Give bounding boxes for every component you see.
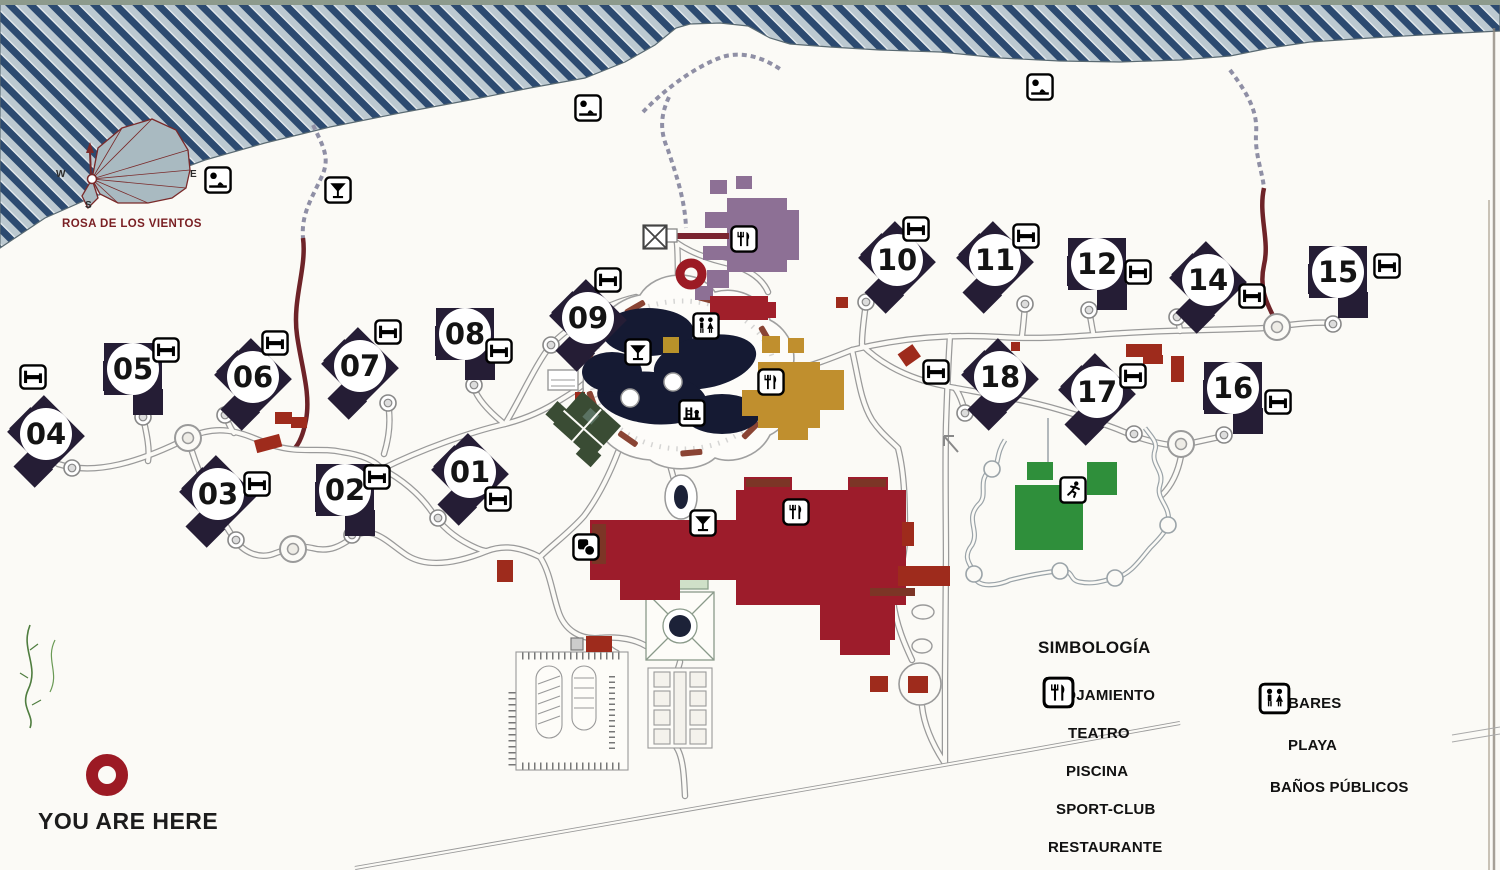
svg-text:01: 01 [450, 455, 490, 489]
jacuzzi [621, 389, 639, 407]
bed-icon [364, 465, 389, 488]
dock-icon [644, 226, 667, 249]
pier [666, 229, 729, 242]
svg-text:15: 15 [1318, 255, 1358, 289]
legend-item-piscina: PISCINA [1042, 752, 1162, 790]
you-are-here-ring [680, 263, 702, 285]
bed-icon [244, 472, 269, 495]
map-fold-edge [1452, 28, 1500, 870]
svg-text:10: 10 [877, 243, 917, 277]
bed-icon [595, 268, 620, 291]
legend-item-label: BARES [1288, 695, 1342, 712]
theater-icon [573, 534, 598, 559]
bar-icon [325, 177, 350, 202]
legend-item-ba-os-p-blicos: BAÑOS PÚBLICOS [1258, 766, 1409, 808]
restaurant-icon [758, 369, 783, 394]
bed-icon [1120, 364, 1145, 387]
bed-icon [486, 339, 511, 362]
svg-text:08: 08 [445, 317, 485, 351]
pool-kiosk [663, 337, 679, 353]
beach-icon [575, 95, 600, 120]
compass-south-label: S [85, 200, 92, 211]
bed-icon [1239, 284, 1264, 307]
legend-item-playa: PLAYA [1258, 724, 1409, 766]
theatre-hotel-building [590, 477, 915, 655]
bed-icon [1013, 224, 1038, 247]
restaurant-icon [783, 499, 808, 524]
sport-icon [1060, 477, 1085, 502]
legend-item-restaurante: RESTAURANTE [1042, 828, 1162, 866]
wc-icon [1258, 682, 1291, 715]
bed-icon [20, 365, 45, 388]
legend-item-label: BAÑOS PÚBLICOS [1270, 779, 1409, 796]
parking-kiosk [586, 636, 612, 652]
legend-item-label: RESTAURANTE [1048, 839, 1162, 856]
compass-west-label: W [56, 169, 65, 180]
svg-text:05: 05 [113, 352, 153, 386]
legend-item-label: PLAYA [1288, 737, 1337, 754]
building-15: 15 [1308, 246, 1368, 318]
bed-icon [903, 217, 928, 240]
legend-column-1: ALOJAMIENTOTEATROPISCINASPORT-CLUBRESTAU… [1042, 676, 1162, 866]
legend-item-teatro: TEATRO [1042, 714, 1162, 752]
svg-text:02: 02 [325, 473, 365, 507]
you-are-here-label: YOU ARE HERE [38, 808, 218, 835]
you-are-here-ring [92, 760, 122, 790]
beach-icon [1027, 74, 1052, 99]
legend-column-2: BARESPLAYABAÑOS PÚBLICOS [1258, 682, 1409, 808]
pool-icon [679, 400, 704, 425]
compass-title: ROSA DE LOS VIENTOS [62, 218, 202, 230]
svg-text:16: 16 [1213, 371, 1253, 405]
svg-text:03: 03 [198, 477, 238, 511]
map-top-border [0, 0, 1500, 5]
building-14: 14 [1154, 240, 1247, 333]
bed-icon [262, 331, 287, 354]
fountain [669, 615, 691, 637]
vegetation [20, 625, 55, 728]
wc-icon [693, 313, 718, 338]
svg-text:07: 07 [340, 349, 380, 383]
restaurant-icon [731, 226, 756, 251]
legend-item-label: SPORT-CLUB [1056, 801, 1156, 818]
bed-icon [1374, 254, 1399, 277]
legend-item-label: TEATRO [1068, 725, 1130, 742]
legend-item-label: PISCINA [1066, 763, 1128, 780]
parking-lot [512, 652, 628, 770]
bed-icon [485, 487, 510, 510]
svg-text:11: 11 [975, 243, 1015, 277]
svg-text:09: 09 [568, 301, 608, 335]
sport-club-field [1015, 462, 1117, 550]
building-03: 03 [164, 454, 257, 547]
svg-text:06: 06 [233, 360, 273, 394]
svg-text:14: 14 [1188, 263, 1228, 297]
legend-title: SIMBOLOGÍA [1038, 638, 1151, 658]
bed-icon [923, 360, 948, 383]
bed-icon [1265, 390, 1290, 413]
bar-icon [625, 339, 650, 364]
formal-garden [648, 668, 712, 748]
svg-text:04: 04 [26, 417, 66, 451]
svg-text:12: 12 [1077, 247, 1117, 281]
building-12: 12 [1067, 238, 1127, 310]
building-16: 16 [1203, 362, 1263, 434]
bed-icon [375, 320, 400, 343]
compass-east-label: E [190, 169, 197, 180]
restaurant-icon [1042, 676, 1075, 709]
legend-item-sport-club: SPORT-CLUB [1042, 790, 1162, 828]
beach-icon [205, 167, 230, 192]
bar-icon [690, 510, 715, 535]
bed-icon [1125, 260, 1150, 283]
svg-text:17: 17 [1077, 375, 1117, 409]
pool-island [664, 373, 682, 391]
svg-text:18: 18 [980, 360, 1020, 394]
bed-icon [153, 338, 178, 361]
snack-building [710, 296, 776, 320]
resort-map: 0102030405060708091011121415161718 W E S… [0, 0, 1500, 870]
